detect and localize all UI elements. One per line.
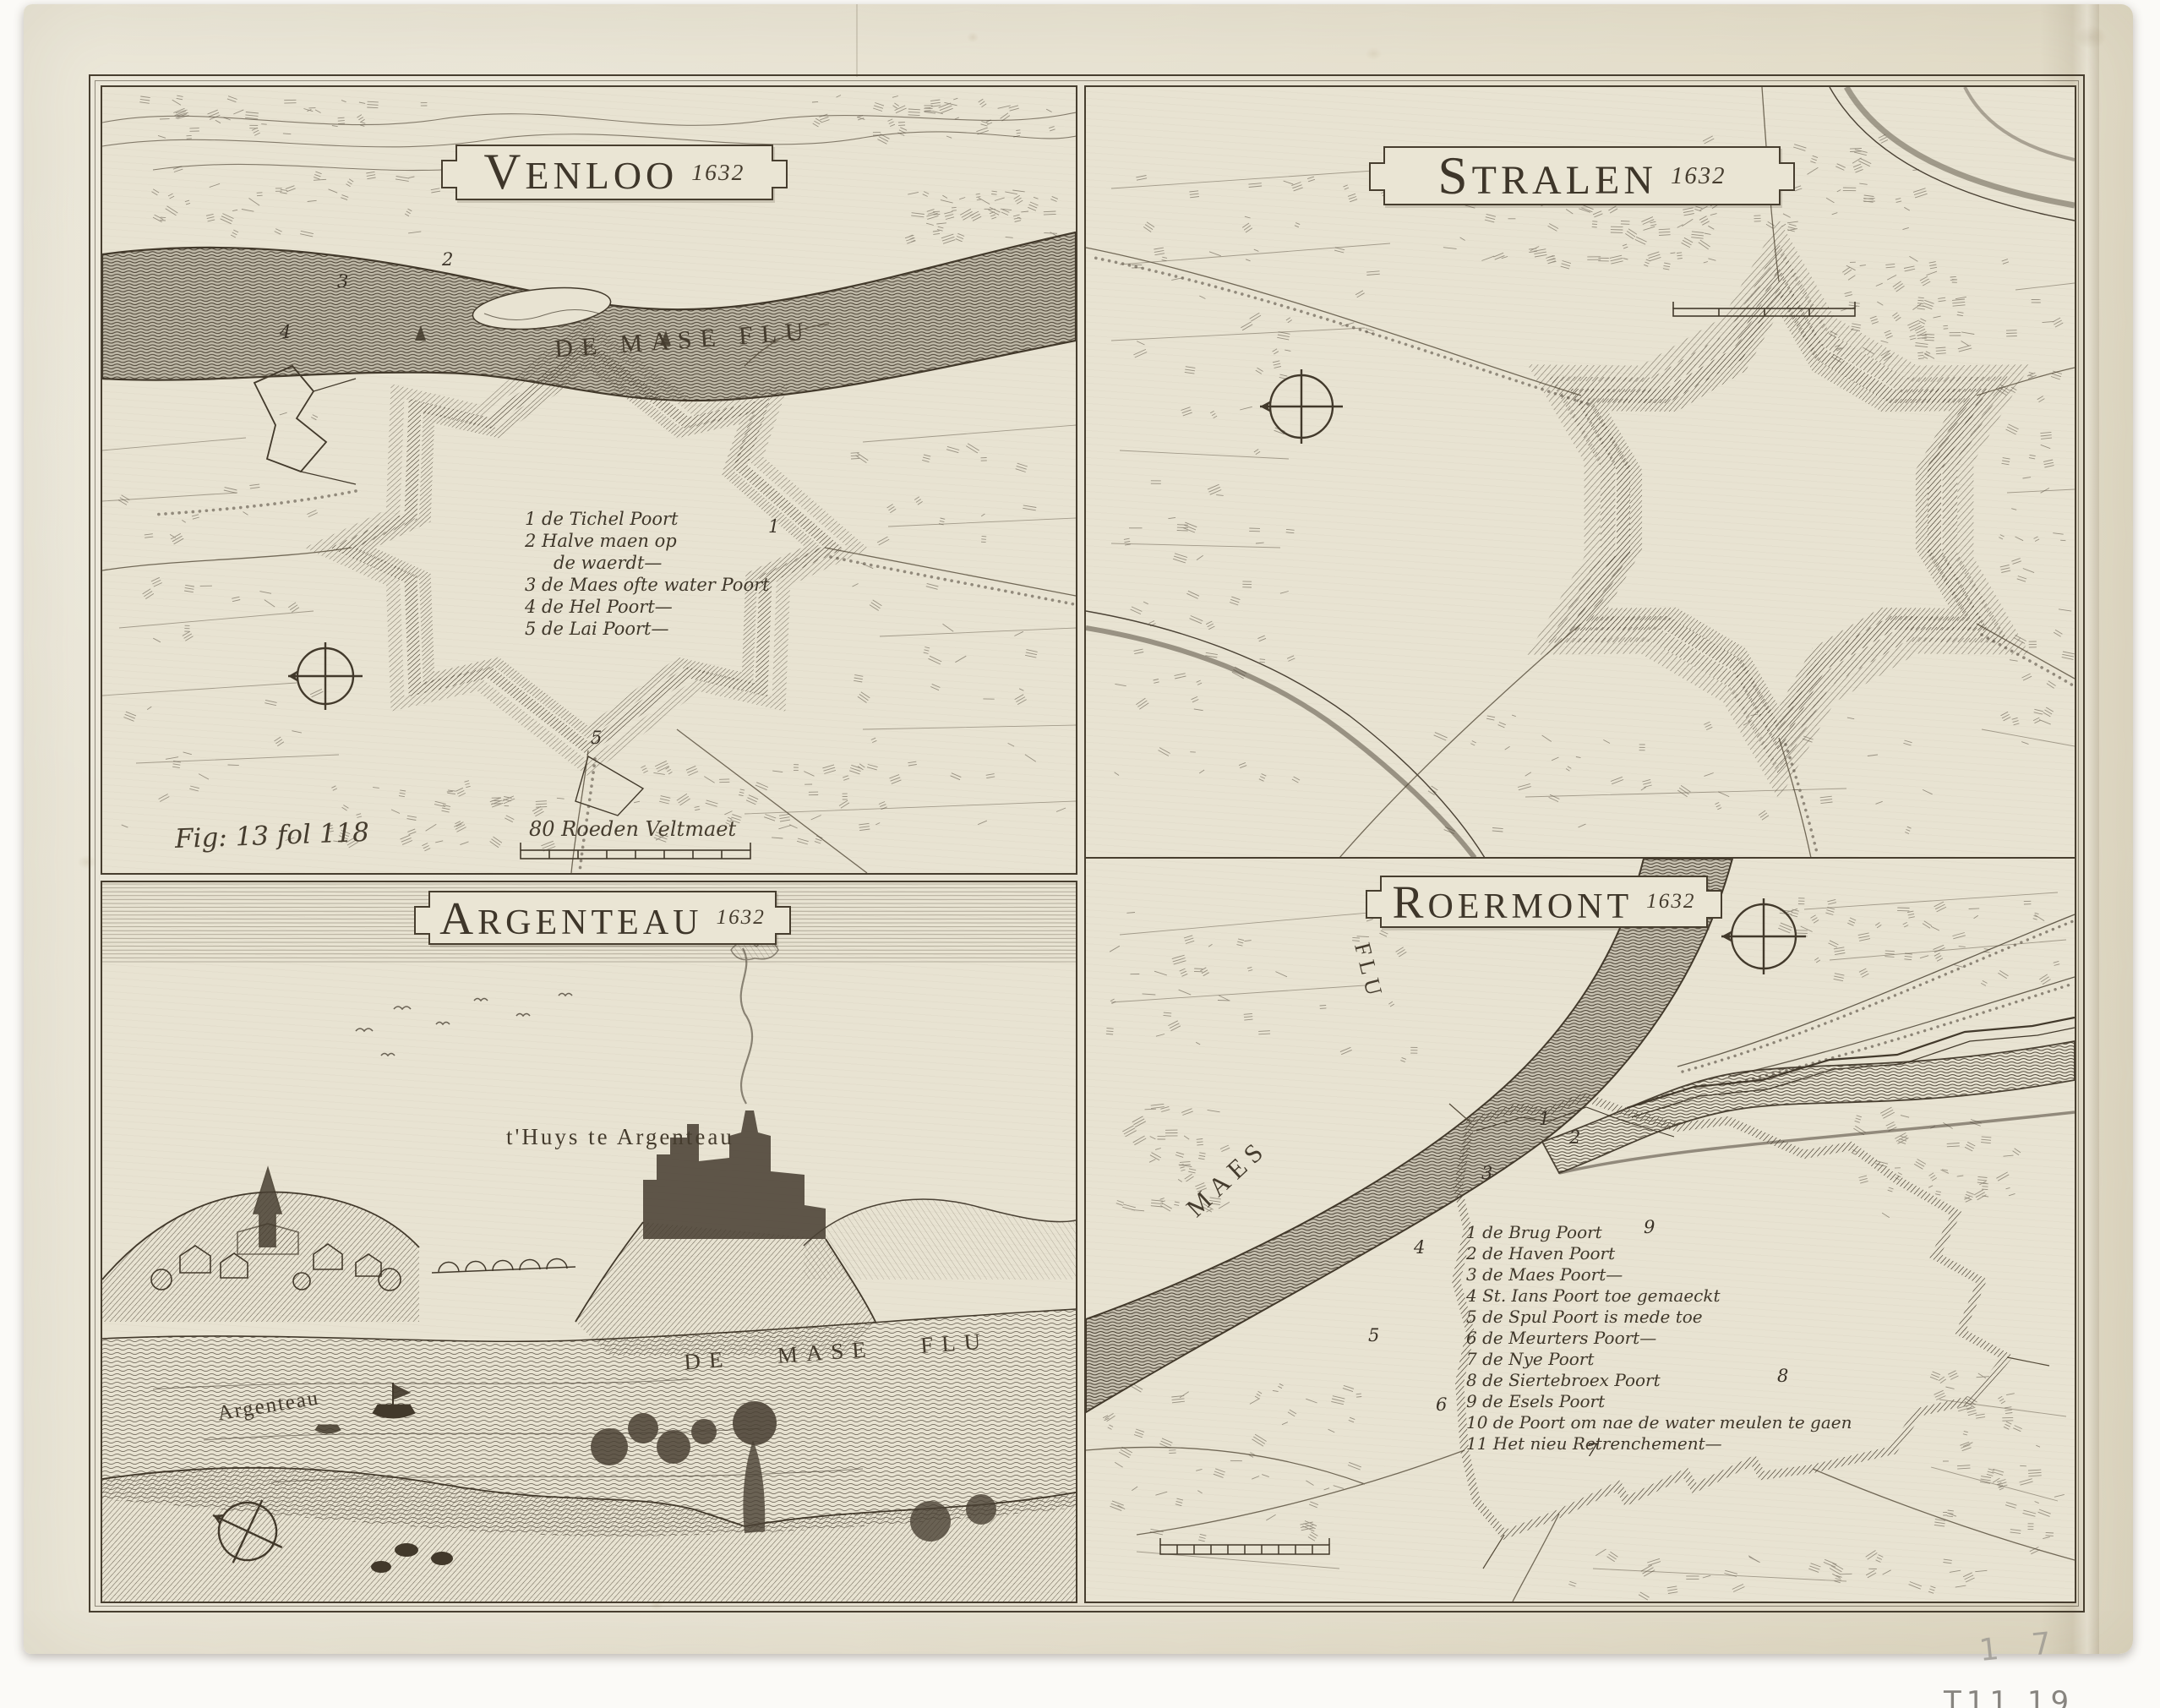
fortification [1541,236,2016,783]
legend-line: 1 de Brug Poort [1466,1222,1852,1243]
gate-number: 2 [1569,1127,1580,1148]
map-year: 1632 [1671,162,1726,190]
title-banner-venloo: Venloo 1632 [455,145,773,200]
map-title: Stralen [1437,145,1657,207]
title-banner-roermont: Roermont 1632 [1380,876,1708,928]
venloo-map-art [102,87,1076,873]
gate-number: 5 [1368,1325,1379,1345]
legend-line: 7 de Nye Poort [1466,1349,1852,1370]
gate-number: 3 [337,271,348,292]
legend-line: 3 de Maes ofte water Poort [525,574,770,596]
legend-line: 8 de Siertebroex Poort [1466,1370,1852,1391]
title-banner-argenteau: Argenteau 1632 [428,891,777,945]
map-title: Argenteau [439,892,702,945]
legend-line: 9 de Esels Poort [1466,1391,1852,1412]
legend-line: 4 de Hel Poort— [525,596,770,618]
gate-number: 8 [1777,1366,1788,1386]
venloo-legend: 1 de Tichel Poort 2 Halve maen op de wae… [525,508,770,640]
legend-line: de waerdt— [525,552,770,574]
river-mase [102,232,1076,401]
birds [356,994,572,1056]
gate-number: 6 [1436,1394,1447,1415]
gate-number: 7 [1586,1440,1597,1460]
scale-bar [1160,1538,1329,1554]
pencil-inscription: 1 7 [1977,1625,2065,1668]
legend-line: 3 de Maes Poort— [1466,1264,1852,1285]
pencil-inscription-clipped: T11 19 [1944,1685,2074,1708]
legend-line: 4 St. Ians Poort toe gemaeckt [1466,1285,1852,1307]
gate-number: 4 [280,322,291,342]
title-banner-stralen: Stralen 1632 [1383,146,1781,205]
roads [1086,1447,2075,1602]
gate-number: 2 [442,249,453,270]
gate-number: 1 [768,516,779,537]
gate-number: 4 [1414,1237,1425,1258]
paper-fold-line [856,4,858,77]
gate-number: 5 [591,728,602,748]
house-label: t'Huys te Argenteau [506,1124,734,1150]
map-year: 1632 [1646,890,1695,914]
gate-number: 3 [1481,1163,1492,1183]
panel-stralen: Stralen 1632 [1084,85,2076,859]
argenteau-view-art [102,882,1076,1602]
engraved-plate: Venloo 1632 DE MASE FLU 1 de Tichel Poor… [89,74,2085,1613]
map-year: 1632 [716,906,765,930]
legend-line: 6 de Meurters Poort— [1466,1328,1852,1349]
compass-rose-icon [288,642,363,710]
legend-line: 2 de Haven Poort [1466,1243,1852,1264]
legend-line: 1 de Tichel Poort [525,508,770,530]
map-year: 1632 [691,159,745,186]
smoke [731,941,778,1104]
roermont-legend: 1 de Brug Poort 2 de Haven Poort 3 de Ma… [1466,1222,1852,1454]
legend-line: 11 Het nieu Retrenchement— [1466,1433,1852,1454]
scanned-print: Venloo 1632 DE MASE FLU 1 de Tichel Poor… [0,0,2160,1708]
scale-bar [521,843,750,859]
panel-venloo: Venloo 1632 DE MASE FLU 1 de Tichel Poor… [101,85,1077,875]
map-title: Roermont [1392,876,1633,929]
gate-number: 1 [1539,1109,1550,1129]
legend-line: 5 de Lai Poort— [525,618,770,640]
legend-line: 2 Halve maen op [525,530,770,552]
paper-sheet: Venloo 1632 DE MASE FLU 1 de Tichel Poor… [24,4,2133,1654]
map-title: Venloo [484,143,679,202]
scale-label: 80 Roeden Veltmaet [529,817,736,841]
bridge [432,1259,575,1273]
panel-roermont: Roermont 1632 MAES FLU 1 de Brug Poort 2… [1084,857,2076,1603]
gate-number: 9 [1644,1217,1655,1237]
panel-argenteau: Argenteau 1632 t'Huys te Argenteau Argen… [101,881,1077,1603]
legend-line: 10 de Poort om nae de water meulen te ga… [1466,1412,1852,1433]
legend-line: 5 de Spul Poort is mede toe [1466,1307,1852,1328]
compass-rose-icon [1260,369,1343,444]
